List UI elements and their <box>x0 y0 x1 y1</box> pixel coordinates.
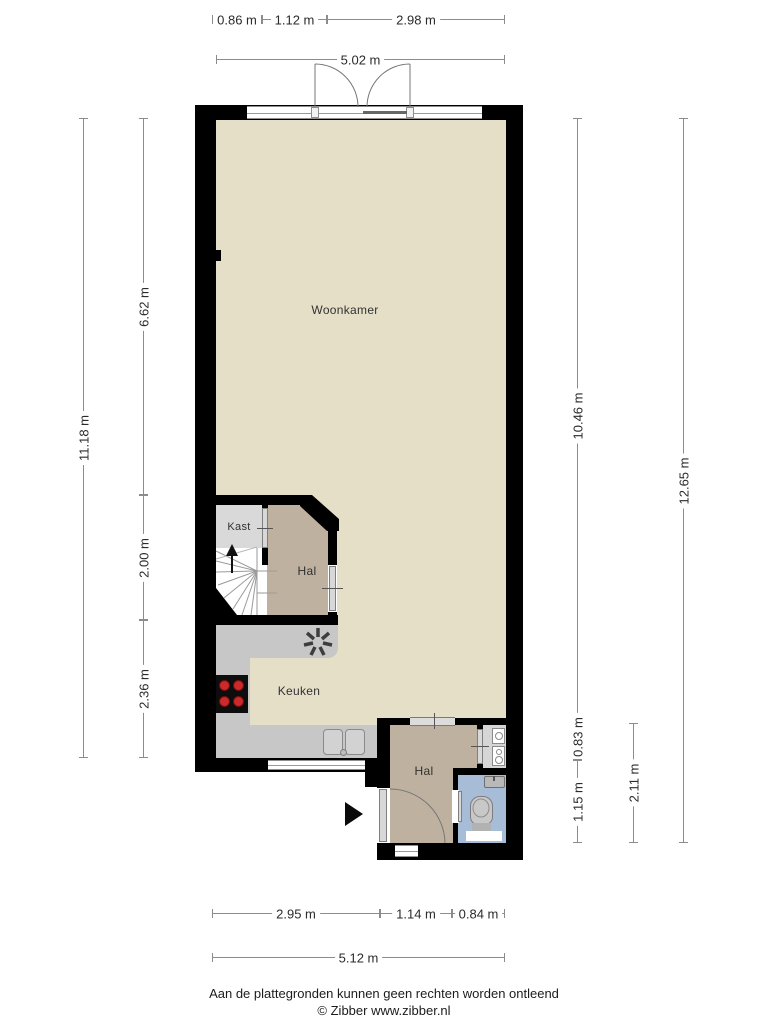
dim-left-662: 6.62 m <box>143 118 144 495</box>
dim-label: 0.86 m <box>213 12 261 27</box>
dim-right-083: 0.83 m <box>577 714 578 760</box>
room-label-woonkamer: Woonkamer <box>311 303 378 317</box>
dim-label: 1.12 m <box>271 12 319 27</box>
dim-top-298: 2.98 m <box>327 19 505 20</box>
dim-top-112: 1.12 m <box>262 19 327 20</box>
french-doors <box>315 64 410 107</box>
dim-top-086: 0.86 m <box>212 19 262 20</box>
dim-label: 5.02 m <box>337 52 385 67</box>
dim-label: 6.62 m <box>134 283 153 331</box>
dim-label: 10.46 m <box>568 389 587 444</box>
dim-left-236: 2.36 m <box>143 620 144 758</box>
dim-label: 2.00 m <box>134 534 153 582</box>
room-label-hal-boven: Hal <box>298 564 317 578</box>
dim-label: 1.14 m <box>392 906 440 921</box>
room-label-kast: Kast <box>227 521 250 533</box>
front-door-arc <box>390 789 445 843</box>
plan-overlay <box>0 0 768 1024</box>
dim-bottom-295: 2.95 m <box>212 913 380 914</box>
dim-label: 12.65 m <box>674 453 693 508</box>
dim-bottom-084: 0.84 m <box>452 913 505 914</box>
dim-label: 5.12 m <box>335 950 383 965</box>
dim-top-502: 5.02 m <box>216 59 505 60</box>
wall-chamfer <box>300 495 339 531</box>
dim-right-211: 2.11 m <box>633 723 634 843</box>
ventilation-fan-icon <box>304 628 332 655</box>
wall-stairs-diagonal <box>216 588 237 615</box>
dim-label: 2.98 m <box>392 12 440 27</box>
room-label-hal-beneden: Hal <box>415 764 434 778</box>
dim-left-1118: 11.18 m <box>83 118 84 758</box>
dim-right-1046: 10.46 m <box>577 118 578 714</box>
dim-right-1265: 12.65 m <box>683 118 684 843</box>
dim-label: 2.95 m <box>272 906 320 921</box>
dim-label: 2.36 m <box>134 665 153 713</box>
stairs-direction-arrow <box>226 544 238 573</box>
dim-right-115: 1.15 m <box>577 760 578 843</box>
floorplan-page: { "rooms": { "woonkamer": "Woonkamer", "… <box>0 0 768 1024</box>
dim-bottom-512: 5.12 m <box>212 957 505 958</box>
dim-label: 0.83 m <box>568 713 587 761</box>
footer-credit: © Zibber www.zibber.nl <box>0 1003 768 1018</box>
dim-left-200: 2.00 m <box>143 495 144 620</box>
footer-disclaimer: Aan de plattegronden kunnen geen rechten… <box>0 986 768 1001</box>
dim-label: 0.84 m <box>455 906 503 921</box>
toilet-seat <box>473 799 489 817</box>
room-label-keuken: Keuken <box>278 684 321 698</box>
dim-bottom-114: 1.14 m <box>380 913 452 914</box>
entrance-arrow-icon <box>345 802 363 826</box>
dim-label: 11.18 m <box>74 411 93 465</box>
dim-label: 2.11 m <box>624 760 643 807</box>
dim-label: 1.15 m <box>568 778 587 826</box>
